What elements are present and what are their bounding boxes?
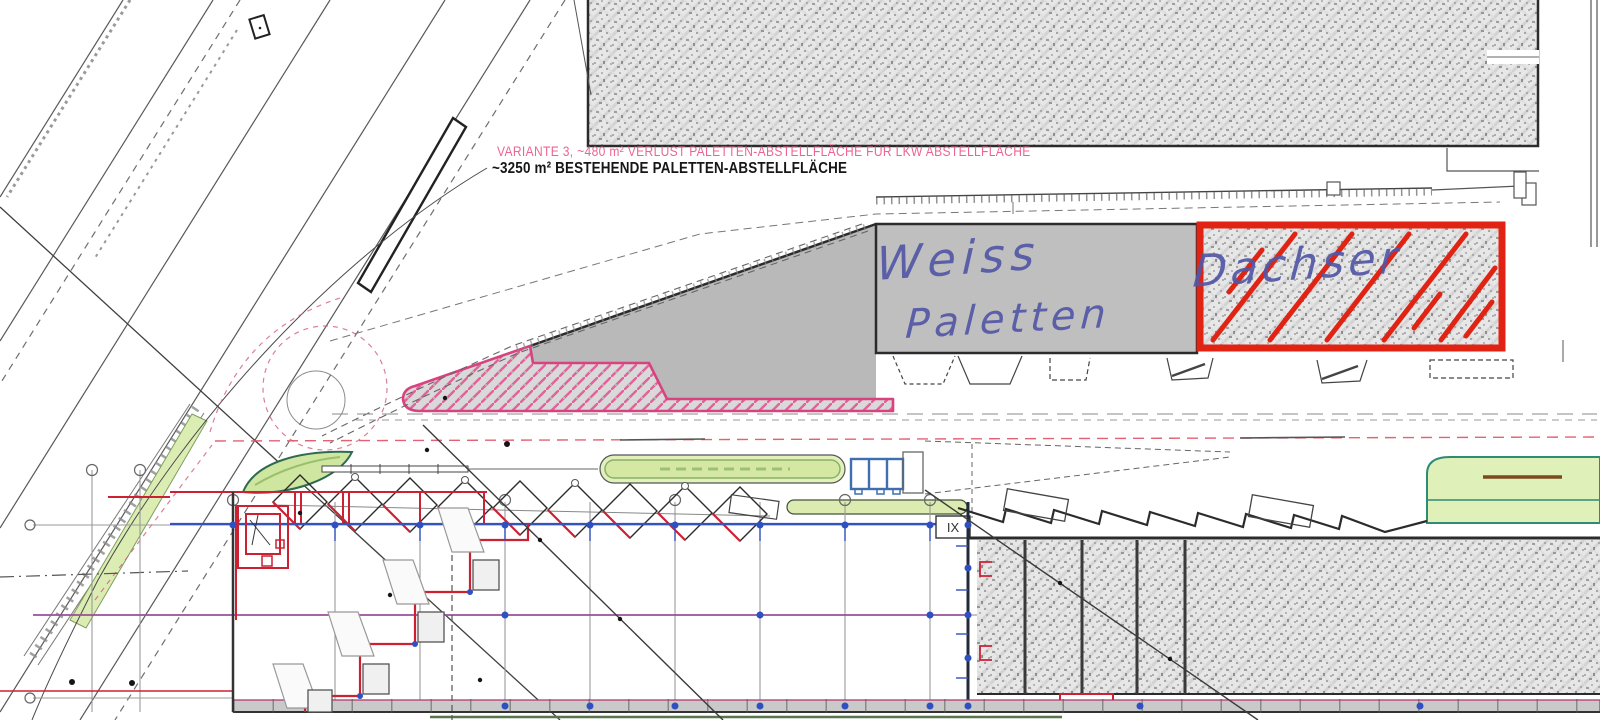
existing-area-annotation: ~3250 m² BESTEHENDE PALETTEN-ABSTELLFLÄC… bbox=[492, 160, 847, 178]
dock-ramps-under-band bbox=[893, 356, 1513, 384]
truck bbox=[851, 452, 923, 494]
drawing-border-right bbox=[1591, 0, 1597, 247]
road-curves-junction bbox=[0, 168, 560, 720]
scale-bar bbox=[322, 464, 598, 474]
grid-cell-box: IX bbox=[936, 516, 970, 538]
small-buildings-topleft bbox=[249, 15, 466, 292]
site-plan-drawing: IX bbox=[0, 0, 1600, 720]
green-area-right bbox=[1427, 457, 1600, 523]
green-strip-mid bbox=[787, 500, 967, 514]
variant-annotation: VARIANTE 3, ~480 m² VERLUST PALETTEN-ABS… bbox=[497, 143, 1031, 159]
hatched-band-right bbox=[968, 538, 1600, 712]
site-plan-scan: IX bbox=[0, 0, 1600, 720]
grid-cell-label: IX bbox=[947, 520, 960, 535]
truck-cab bbox=[903, 452, 923, 493]
dock-diamonds-row bbox=[273, 474, 770, 542]
dock-stairs-left bbox=[273, 508, 528, 712]
